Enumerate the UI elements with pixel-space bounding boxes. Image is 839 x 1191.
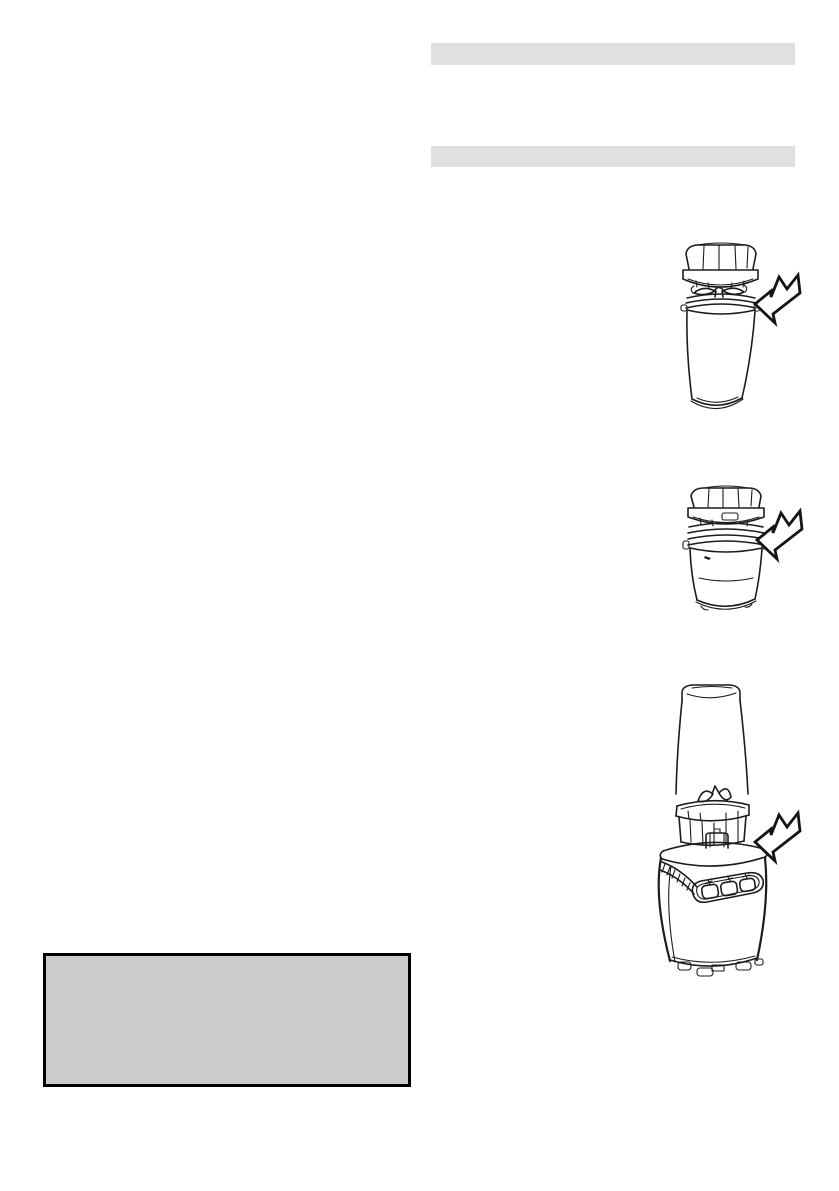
note-box (43, 953, 411, 1087)
tall-cup-icon (687, 310, 755, 409)
button-1-icon (701, 884, 719, 899)
threaded-rim-icon (681, 294, 760, 311)
threaded-rim-icon (683, 523, 768, 549)
figure-step2-blade-lid-onto-short-cup (683, 486, 802, 610)
assembly-arrow-icon (755, 275, 800, 323)
figure-step1-blade-lid-onto-tall-cup (681, 243, 800, 409)
short-cup-icon (690, 548, 762, 610)
button-3-icon (739, 878, 756, 892)
ribbed-blade-ring-icon (676, 801, 749, 846)
assembly-arrow-icon (755, 813, 800, 861)
blade-lid-icon (688, 486, 764, 526)
figure-step3-cup-onto-motor-base (659, 685, 800, 976)
inverted-cup-icon (676, 685, 748, 794)
blade-lid-icon (683, 243, 758, 289)
control-panel-icon (692, 873, 763, 903)
button-2-icon (720, 881, 738, 896)
cross-blades-icon (698, 786, 731, 802)
manual-page (0, 0, 839, 1191)
motor-base-icon (659, 842, 767, 966)
assembly-arrow-icon (757, 511, 802, 559)
